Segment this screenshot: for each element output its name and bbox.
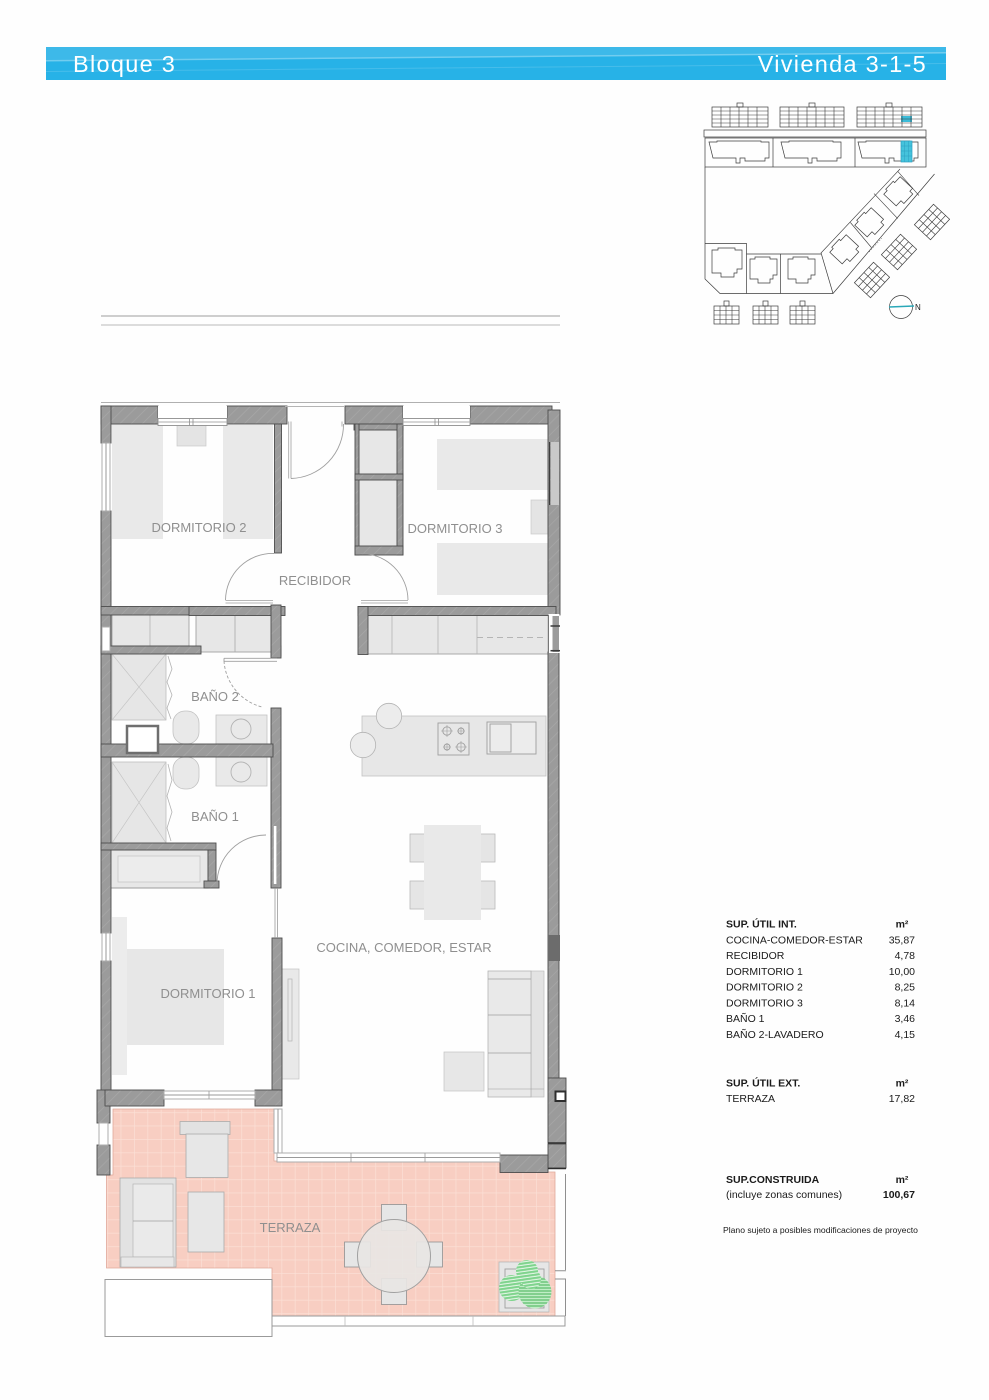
svg-text:4,15: 4,15 bbox=[895, 1029, 916, 1041]
svg-text:4,78: 4,78 bbox=[895, 950, 916, 962]
svg-text:COCINA-COMEDOR-ESTAR: COCINA-COMEDOR-ESTAR bbox=[726, 934, 863, 946]
svg-text:35,87: 35,87 bbox=[889, 934, 915, 946]
svg-text:SUP. ÚTIL INT.: SUP. ÚTIL INT. bbox=[726, 918, 797, 931]
svg-text:Plano sujeto a posibles modifi: Plano sujeto a posibles modificaciones d… bbox=[723, 1225, 918, 1235]
svg-text:8,25: 8,25 bbox=[895, 982, 916, 994]
svg-text:SUP. ÚTIL EXT.: SUP. ÚTIL EXT. bbox=[726, 1077, 800, 1090]
svg-text:DORMITORIO 3: DORMITORIO 3 bbox=[726, 997, 803, 1009]
svg-text:m²: m² bbox=[896, 919, 909, 931]
svg-text:(incluye zonas comunes): (incluye zonas comunes) bbox=[726, 1189, 842, 1201]
svg-text:BAÑO 2-LAVADERO: BAÑO 2-LAVADERO bbox=[726, 1028, 824, 1041]
svg-text:DORMITORIO 2: DORMITORIO 2 bbox=[726, 982, 803, 994]
svg-text:3,46: 3,46 bbox=[895, 1013, 916, 1025]
svg-text:N: N bbox=[915, 303, 921, 312]
svg-text:DORMITORIO 1: DORMITORIO 1 bbox=[726, 966, 803, 978]
svg-text:Vivienda 3-1-5: Vivienda 3-1-5 bbox=[758, 51, 927, 77]
svg-text:RECIBIDOR: RECIBIDOR bbox=[726, 950, 785, 962]
svg-text:100,67: 100,67 bbox=[883, 1189, 915, 1201]
svg-text:m²: m² bbox=[896, 1174, 909, 1186]
svg-text:RECIBIDOR: RECIBIDOR bbox=[279, 573, 351, 588]
svg-text:BAÑO 1: BAÑO 1 bbox=[726, 1012, 765, 1025]
svg-text:BAÑO 1: BAÑO 1 bbox=[191, 809, 239, 824]
svg-text:COCINA, COMEDOR, ESTAR: COCINA, COMEDOR, ESTAR bbox=[316, 940, 491, 955]
svg-text:DORMITORIO 3: DORMITORIO 3 bbox=[407, 521, 502, 536]
svg-text:TERRAZA: TERRAZA bbox=[260, 1220, 321, 1235]
svg-text:17,82: 17,82 bbox=[889, 1093, 915, 1105]
svg-text:DORMITORIO 1: DORMITORIO 1 bbox=[160, 986, 255, 1001]
svg-text:BAÑO 2: BAÑO 2 bbox=[191, 689, 239, 704]
svg-text:m²: m² bbox=[896, 1078, 909, 1090]
svg-text:10,00: 10,00 bbox=[889, 966, 915, 978]
svg-text:TERRAZA: TERRAZA bbox=[726, 1093, 775, 1105]
svg-text:Bloque 3: Bloque 3 bbox=[73, 51, 176, 77]
svg-text:DORMITORIO 2: DORMITORIO 2 bbox=[151, 520, 246, 535]
svg-text:SUP.CONSTRUIDA: SUP.CONSTRUIDA bbox=[726, 1174, 820, 1186]
svg-text:8,14: 8,14 bbox=[895, 997, 916, 1009]
